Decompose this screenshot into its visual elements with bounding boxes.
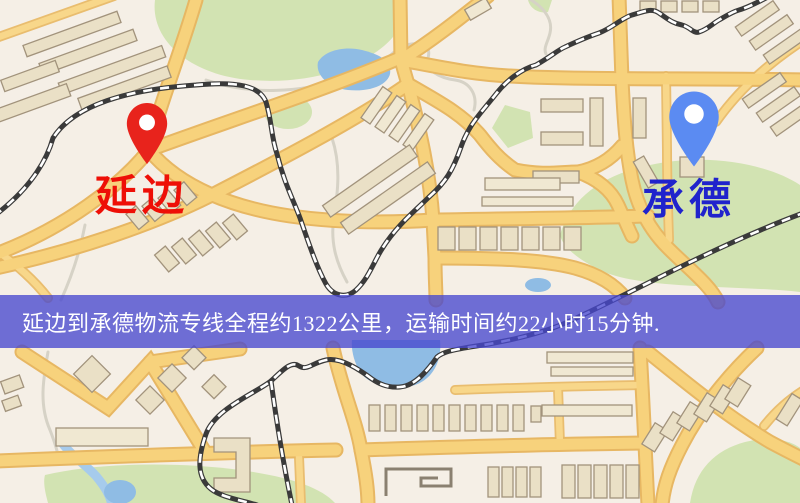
route-banner: 延边到承德物流专线全程约1322公里，运输时间约22小时15分钟. bbox=[0, 295, 800, 348]
origin-pin[interactable] bbox=[125, 100, 169, 167]
map-canvas[interactable] bbox=[0, 0, 800, 503]
origin-label: 延边 bbox=[95, 176, 189, 218]
destination-pin-icon bbox=[666, 90, 722, 168]
destination-pin[interactable] bbox=[666, 90, 722, 168]
destination-label: 承德 bbox=[642, 180, 736, 222]
route-banner-text: 延边到承德物流专线全程约1322公里，运输时间约22小时15分钟. bbox=[0, 306, 660, 338]
origin-pin-icon bbox=[125, 100, 169, 167]
map-screenshot: 延边 承德 延边到承德物流专线全程约1322公里，运输时间约22小时15分钟. bbox=[0, 0, 800, 503]
